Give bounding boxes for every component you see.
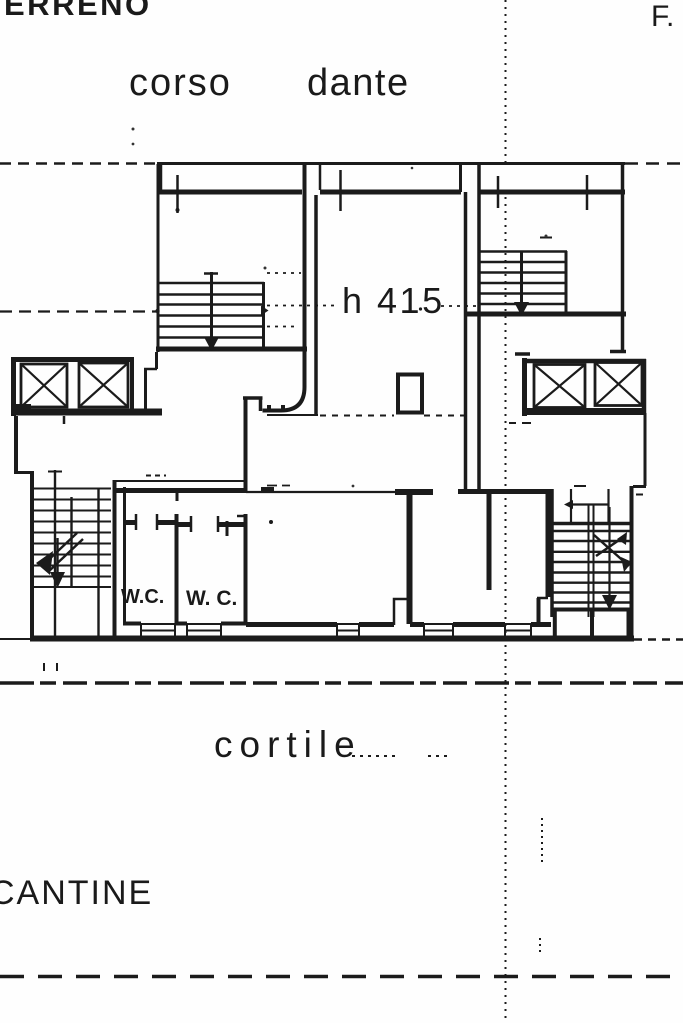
svg-text:F.: F. (651, 0, 674, 33)
svg-text:cortile: cortile (214, 724, 362, 765)
svg-text:ERRENO: ERRENO (4, 0, 152, 22)
svg-text:h 415: h 415 (342, 280, 445, 321)
svg-text:W. C.: W. C. (186, 587, 237, 610)
svg-text:W.C.: W.C. (121, 586, 164, 608)
svg-text:CANTINE: CANTINE (0, 874, 153, 912)
svg-text:dante: dante (307, 62, 410, 104)
svg-text:corso: corso (129, 62, 232, 104)
